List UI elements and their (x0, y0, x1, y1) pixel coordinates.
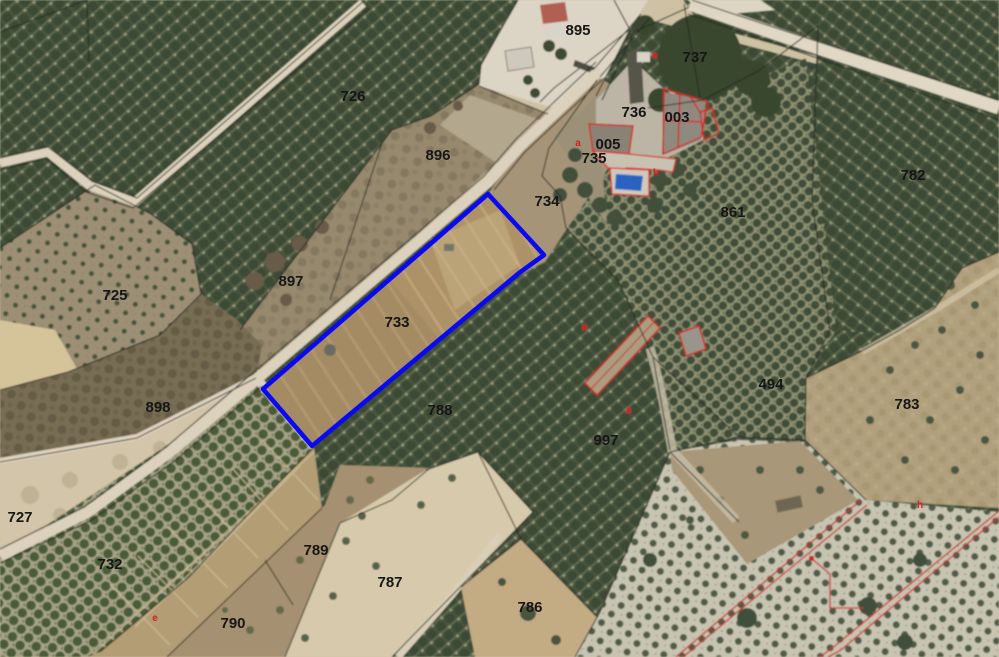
svg-text:e: e (152, 613, 158, 624)
svg-text:782: 782 (900, 167, 925, 184)
svg-text:a: a (575, 138, 581, 149)
svg-text:725: 725 (102, 287, 127, 304)
svg-text:003: 003 (664, 109, 689, 126)
svg-text:732: 732 (97, 556, 122, 573)
svg-text:895: 895 (565, 22, 590, 39)
svg-text:786: 786 (517, 599, 542, 616)
svg-text:737: 737 (682, 49, 707, 66)
svg-text:727: 727 (7, 509, 32, 526)
svg-text:736: 736 (621, 104, 646, 121)
svg-text:997: 997 (593, 432, 618, 449)
svg-text:897: 897 (278, 273, 303, 290)
svg-text:735: 735 (581, 150, 606, 167)
svg-text:726: 726 (340, 88, 365, 105)
svg-text:861: 861 (720, 204, 745, 221)
svg-text:733: 733 (384, 314, 409, 331)
svg-text:896: 896 (425, 147, 450, 164)
svg-text:b: b (653, 168, 659, 179)
svg-text:h: h (917, 500, 923, 511)
svg-text:783: 783 (894, 396, 919, 413)
svg-text:494: 494 (758, 376, 784, 393)
svg-text:898: 898 (145, 399, 170, 416)
svg-text:789: 789 (303, 542, 328, 559)
svg-text:790: 790 (220, 615, 245, 632)
svg-text:787: 787 (377, 574, 402, 591)
svg-text:788: 788 (427, 402, 452, 419)
svg-text:734: 734 (534, 193, 560, 210)
